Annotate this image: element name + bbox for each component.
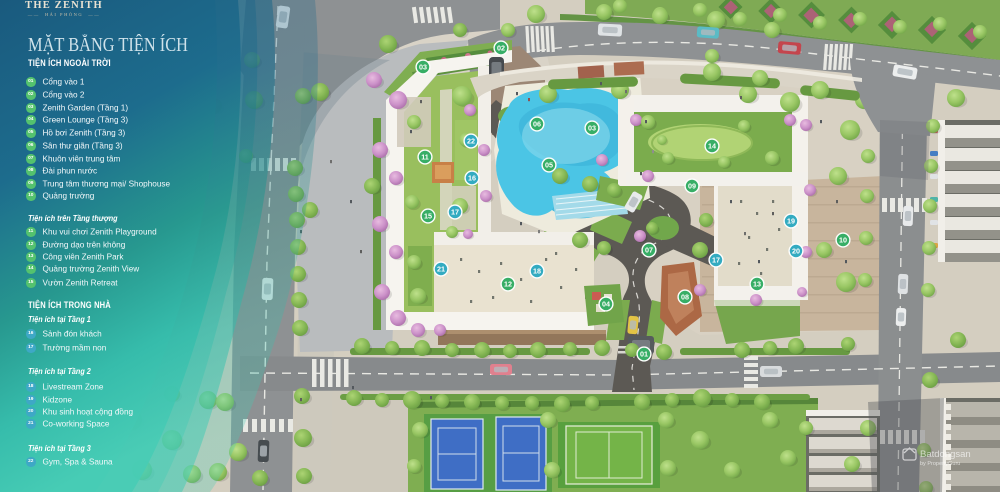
svg-text:by PropertyGuru: by PropertyGuru xyxy=(920,461,960,467)
svg-text:Batdongsan: Batdongsan xyxy=(920,449,971,460)
